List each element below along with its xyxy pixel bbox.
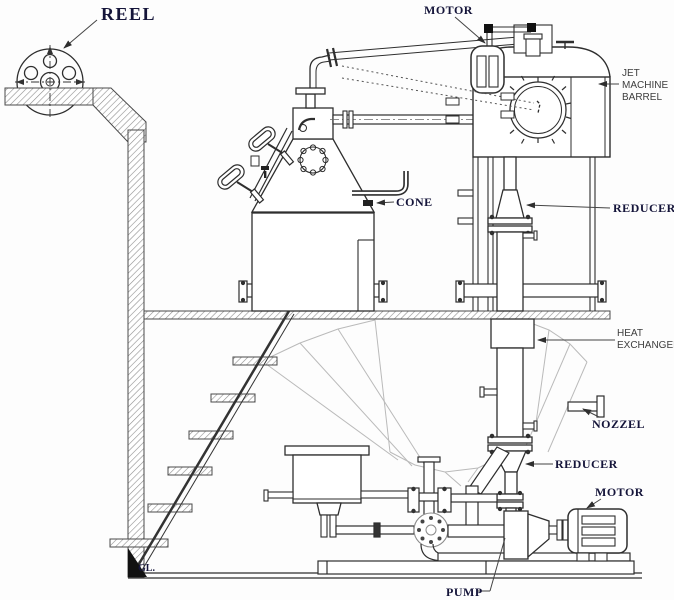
heat-exchanger-stack [480, 319, 537, 516]
diagram-canvas: REEL MOTOR JET MACHINE BARREL CONE REDUC… [0, 0, 674, 600]
label-jmb-line2: MACHINE [622, 80, 668, 91]
nozzle-stub [568, 396, 604, 417]
label-cone: CONE [396, 195, 433, 210]
label-reducer-upper: REDUCER [613, 201, 674, 216]
label-motor-top: MOTOR [424, 3, 473, 18]
barrel-motor-drawing [471, 46, 504, 93]
reel-centerlines [15, 45, 85, 120]
label-motor-lower: MOTOR [595, 485, 644, 500]
label-reel: REEL [101, 4, 156, 25]
stair-rail [133, 311, 294, 577]
label-he-line2: EXCHANGER [617, 340, 674, 351]
label-jmb-line1: JET [622, 68, 640, 79]
label-he-line1: HEAT [617, 328, 643, 339]
label-reducer-lower: REDUCER [555, 457, 618, 472]
label-ground-level: GL. [138, 563, 155, 574]
cone-assembly [252, 55, 374, 311]
tank-drawing [264, 446, 408, 537]
pump-motor-drawing [568, 509, 627, 561]
technical-drawing [0, 0, 674, 600]
pump-drawing [504, 511, 568, 559]
label-jmb-line3: BARREL [622, 92, 662, 103]
label-nozzle: NOZZEL [592, 417, 645, 432]
label-pump: PUMP [446, 585, 483, 600]
